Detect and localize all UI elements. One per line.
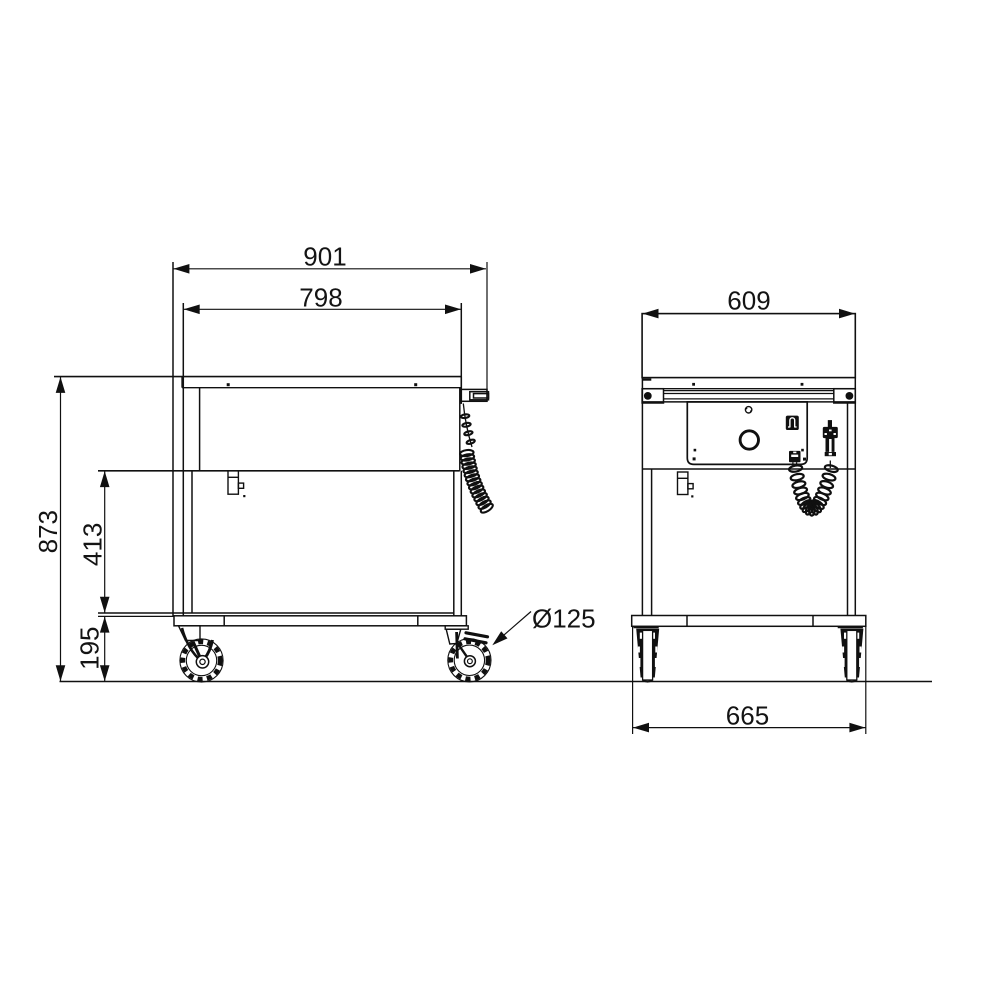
svg-text:Ø125: Ø125 xyxy=(532,603,596,633)
svg-text:665: 665 xyxy=(726,700,769,730)
svg-text:413: 413 xyxy=(78,523,108,566)
svg-text:798: 798 xyxy=(299,282,342,312)
svg-text:195: 195 xyxy=(74,627,104,670)
svg-text:609: 609 xyxy=(727,285,770,315)
svg-text:873: 873 xyxy=(33,510,63,553)
svg-text:901: 901 xyxy=(303,242,346,272)
